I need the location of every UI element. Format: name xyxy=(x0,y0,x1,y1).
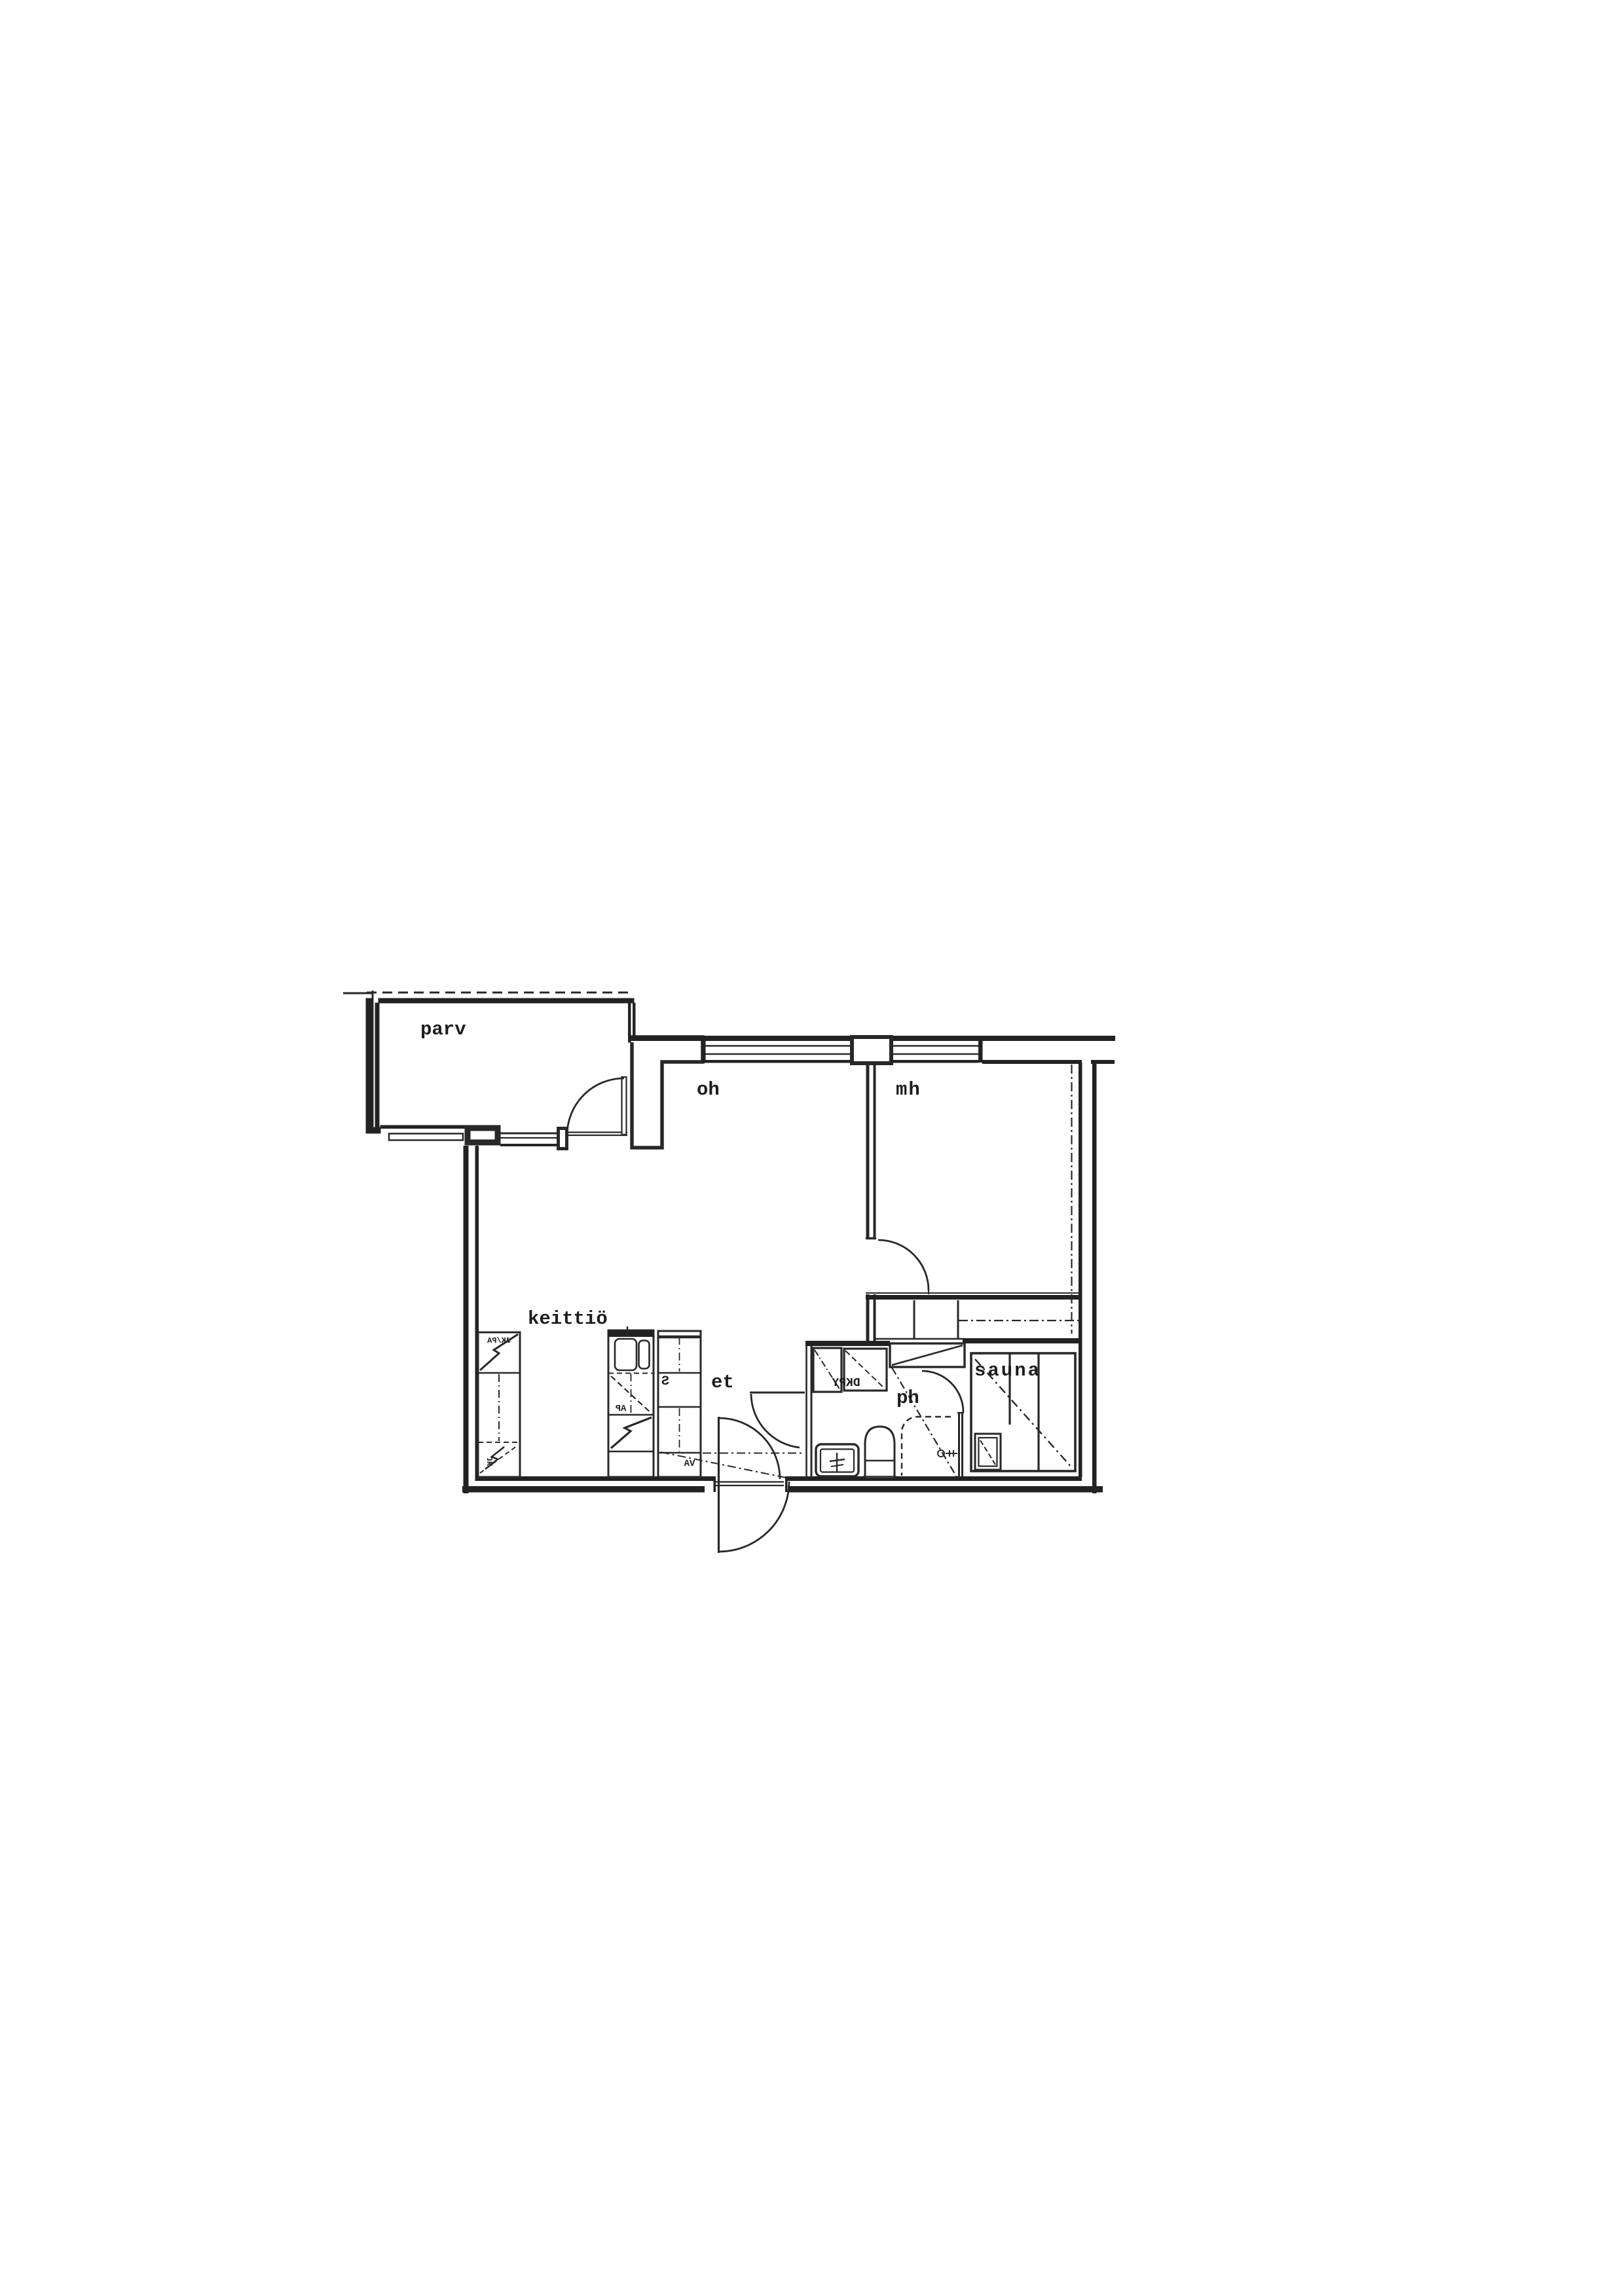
svg-text:AP: AP xyxy=(616,1404,627,1414)
svg-text:ph: ph xyxy=(896,1387,919,1409)
svg-text:JK: JK xyxy=(486,1457,495,1467)
svg-text:mh: mh xyxy=(896,1079,921,1101)
svg-text:sauna: sauna xyxy=(974,1360,1041,1381)
svg-text:JK/PA: JK/PA xyxy=(487,1336,511,1345)
svg-text:et: et xyxy=(711,1372,734,1393)
svg-text:parv: parv xyxy=(420,1019,466,1040)
svg-text:VA: VA xyxy=(684,1459,695,1469)
svg-text:keittiö: keittiö xyxy=(528,1308,608,1330)
svg-text:S: S xyxy=(661,1374,669,1389)
svg-text:oh: oh xyxy=(697,1079,720,1101)
svg-text:DKPY: DKPY xyxy=(832,1377,860,1390)
